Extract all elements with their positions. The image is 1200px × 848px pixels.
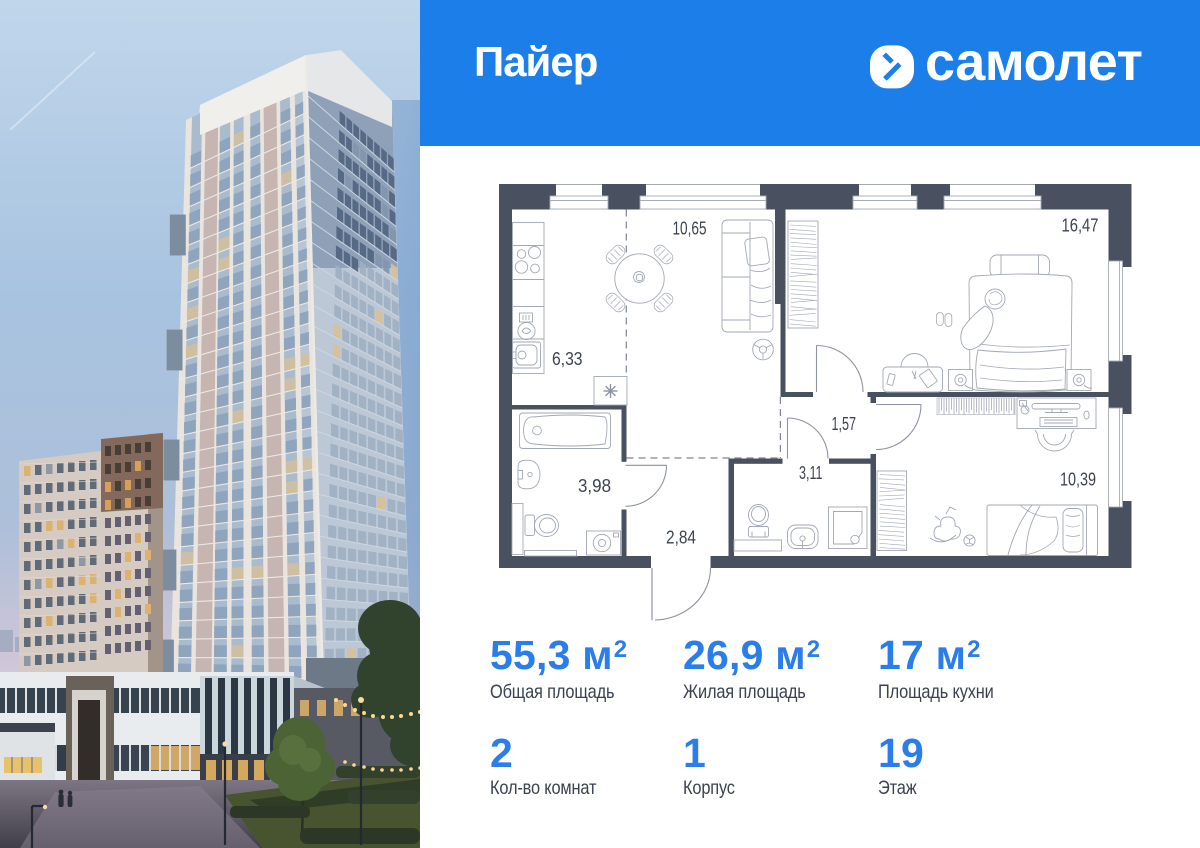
svg-text:3,11: 3,11 xyxy=(799,462,823,483)
svg-text:16,47: 16,47 xyxy=(1062,215,1099,236)
svg-text:3,98: 3,98 xyxy=(578,475,611,496)
svg-text:1,57: 1,57 xyxy=(832,413,857,434)
svg-text:10,39: 10,39 xyxy=(1060,469,1096,490)
svg-text:6,33: 6,33 xyxy=(552,348,583,369)
svg-text:10,65: 10,65 xyxy=(673,218,707,239)
svg-text:2,84: 2,84 xyxy=(666,527,696,548)
